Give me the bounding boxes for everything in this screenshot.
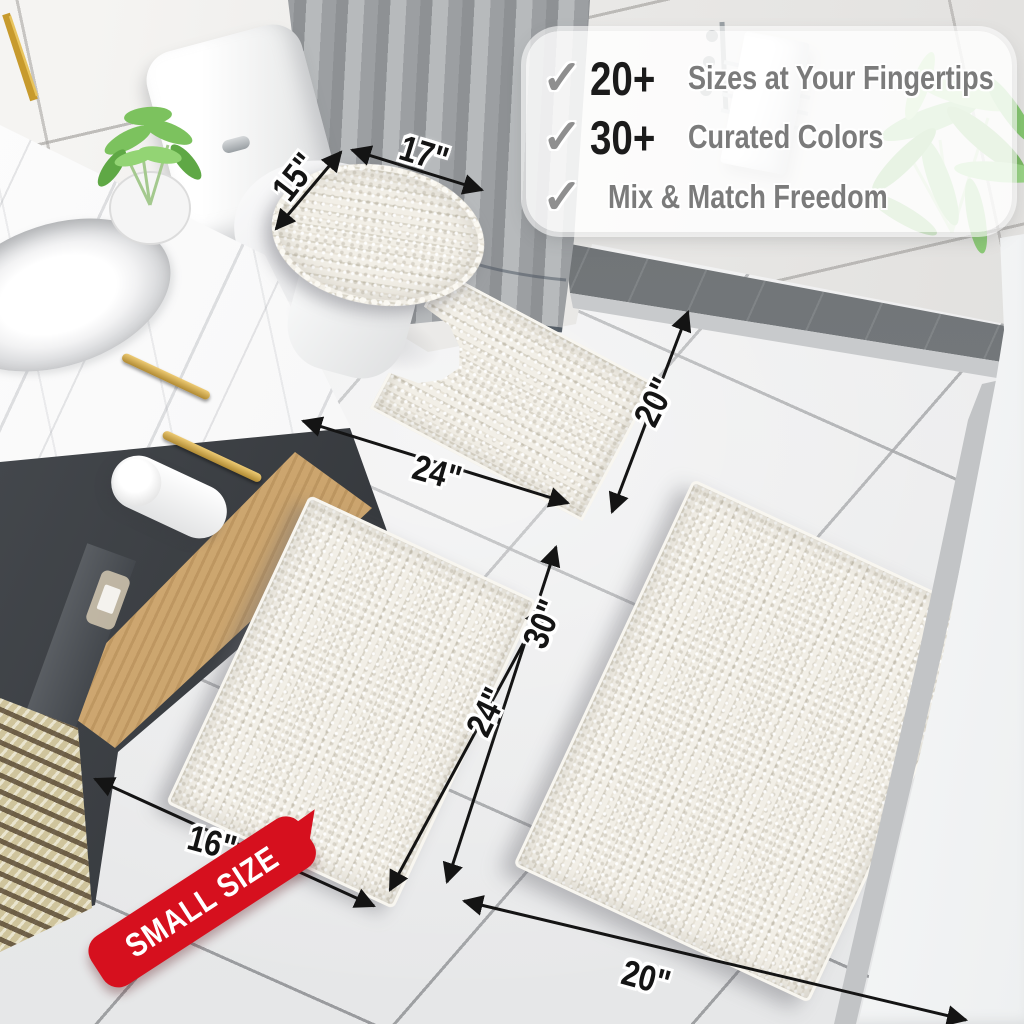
feature-label: Sizes at Your Fingertips	[688, 59, 1024, 97]
feature-row: ✓ 30+ Curated Colors	[542, 110, 926, 164]
check-icon: ✓	[542, 169, 590, 225]
product-image: 17" 15" 24" 20" 16" 24" 30" 20" ✓ 20+ Si…	[0, 0, 1024, 1024]
feature-stat: 30+	[590, 110, 670, 165]
check-icon: ✓	[542, 109, 590, 165]
feature-row: ✓ 20+ Sizes at Your Fingertips	[542, 51, 1024, 105]
feature-stat: 20+	[590, 51, 670, 106]
check-icon: ✓	[542, 50, 590, 106]
dim-line-small-length	[390, 607, 543, 890]
feature-callout: ✓ 20+ Sizes at Your Fingertips ✓ 30+ Cur…	[526, 31, 1012, 232]
feature-label: Mix & Match Freedom	[608, 178, 949, 216]
feature-label: Curated Colors	[688, 118, 926, 156]
feature-row: ✓ Mix & Match Freedom	[542, 170, 949, 224]
dim-line-large-width	[464, 901, 966, 1020]
